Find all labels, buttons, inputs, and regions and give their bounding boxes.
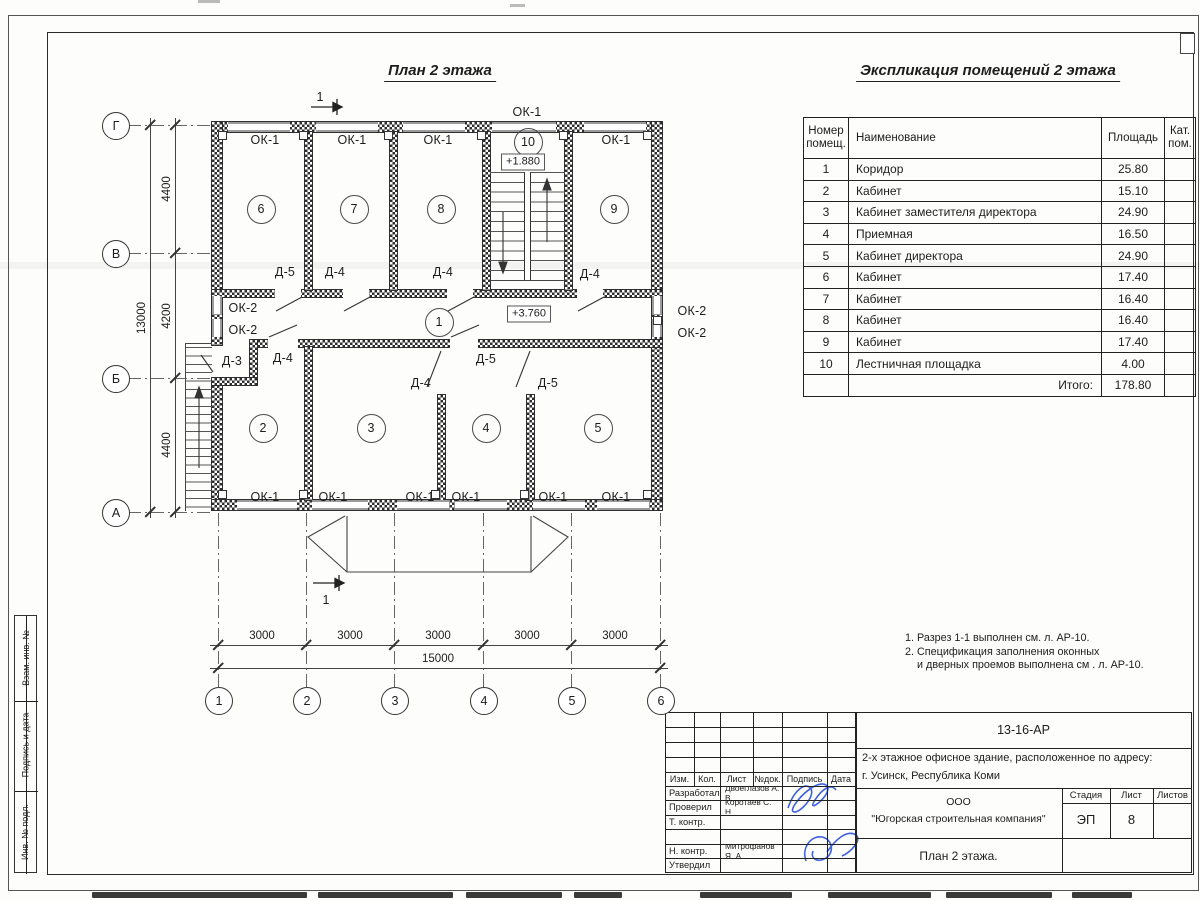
tb-role: Утвердил [665,858,720,872]
window [584,122,646,132]
room-circle-9: 9 [600,195,629,224]
room-number: 4 [804,223,849,245]
axis-line [660,513,661,688]
room-circle-7: 7 [340,195,369,224]
opening-label: ОК-1 [319,490,348,504]
grid-bubble-А: А [102,499,130,527]
grid-bubble-1: 1 [205,687,233,715]
axis-line [306,513,307,688]
window [212,296,222,314]
dim-label: 3000 [337,630,363,642]
opening-label: Д-3 [222,354,242,368]
note-line: 2. Спецификация заполнения оконных [905,646,1144,660]
tb-name [721,829,782,843]
axis-line [128,512,213,513]
list-label: Лист [1110,788,1153,803]
opening-label: Д-4 [325,265,345,279]
door-gap [450,338,478,349]
door-gap [268,338,298,349]
pier [384,131,393,140]
room-number: 9 [804,331,849,353]
opening-label: ОК-1 [452,490,481,504]
room-category [1165,331,1196,353]
section-number: 1 [323,593,330,607]
tb-role: Разработал [665,786,720,800]
tb-col-list: Лист [720,772,753,786]
room-circle-1: 1 [425,308,454,337]
col-header-cat: Кат. пом. [1165,118,1196,159]
opening-label: Д-5 [538,376,558,390]
room-category [1165,266,1196,288]
scan-mark [510,4,525,7]
elevation-mark: +3.760 [507,306,551,323]
opening-label: ОК-2 [229,323,258,337]
room-number: 8 [804,310,849,332]
room-name: Коридор [849,159,1102,181]
explication-row: 4Приемная16.50 [804,223,1196,245]
opening-label: ОК-1 [251,490,280,504]
room-number: 2 [804,180,849,202]
pier [653,316,662,325]
scan-mark [92,892,307,898]
room-name: Кабинет [849,266,1102,288]
explication-row: 6Кабинет17.40 [804,266,1196,288]
scan-mark [700,892,792,898]
opening-label: ОК-1 [539,490,568,504]
list-value: 8 [1110,803,1153,836]
scan-mark [318,892,453,898]
dim-line [210,645,668,646]
partition [305,347,312,500]
room-number: 6 [804,266,849,288]
dim-label: 3000 [602,630,628,642]
elevation-mark: +1.880 [501,154,545,171]
pier [218,490,227,499]
pier [643,490,652,499]
explication-row: 1Коридор25.80 [804,159,1196,181]
explication-row: 7Кабинет16.40 [804,288,1196,310]
door-gap [447,288,473,299]
grid-bubble-2: 2 [293,687,321,715]
window [652,296,662,314]
col-header-number: Номер помещ. [804,118,849,159]
room-name: Кабинет [849,331,1102,353]
room-name: Кабинет [849,288,1102,310]
scan-mark [946,892,1052,898]
room-name: Кабинет заместителя директора [849,202,1102,224]
pier [520,490,529,499]
dim-label: 13000 [136,302,148,334]
grid-bubble-6: 6 [647,687,675,715]
tb-col-sign: Подпись [782,772,827,786]
explication-row: 2Кабинет15.10 [804,180,1196,202]
room-circle-2: 2 [249,414,278,443]
company-line1: ООО [855,793,1062,811]
room-area: 16.40 [1102,310,1165,332]
opening-label: ОК-2 [229,301,258,315]
stair-wall [483,132,490,290]
pier [477,131,486,140]
dim-label: 3000 [249,630,275,642]
room-area: 17.40 [1102,331,1165,353]
opening-label: ОК-1 [602,490,631,504]
tb-name: Митрофанов Я. А. [721,844,782,858]
explication-row: 8Кабинет16.40 [804,310,1196,332]
partition [438,395,445,500]
dim-line [210,668,668,669]
room-number: 5 [804,245,849,267]
stage-label: Стадия [1062,788,1110,803]
axis-line [571,513,572,688]
dim-label: 4400 [161,176,173,202]
opening-label: Д-4 [580,267,600,281]
object-line1: 2-х этажное офисное здание, расположенно… [855,748,1192,768]
scan-mark [828,892,931,898]
partition [390,132,397,290]
opening-label: Д-4 [411,376,431,390]
room-name: Кабинет [849,310,1102,332]
opening-label: ОК-1 [424,133,453,147]
room-name: Кабинет [849,180,1102,202]
room-area: 15.10 [1102,180,1165,202]
opening-label: Д-4 [273,351,293,365]
explication-row: 9Кабинет17.40 [804,331,1196,353]
room-area: 4.00 [1102,353,1165,375]
axis-line [483,513,484,688]
tb-col-kol: Кол. [694,772,720,786]
section-number: 1 [317,90,324,104]
window [212,319,222,337]
pier [299,490,308,499]
axis-line [128,125,213,126]
opening-label: ОК-1 [513,105,542,119]
wall-stub [212,378,257,385]
sheet-caption: План 2 этажа. [855,838,1062,873]
window [228,122,290,132]
pier [559,131,568,140]
stage-value: ЭП [1062,803,1110,836]
total-area: 178.80 [1102,374,1165,396]
ext-stair-edge [185,343,212,344]
partition [305,132,312,290]
room-area: 17.40 [1102,266,1165,288]
axis-line [394,513,395,688]
door-gap [343,288,369,299]
explication-row: 10Лестничная площадка4.00 [804,353,1196,375]
note-line: 1. Разрез 1-1 выполнен см. л. АР-10. [905,632,1144,646]
room-circle-10: 10 [514,128,543,157]
listov-value [1153,803,1192,836]
tb-role [665,829,720,843]
opening-label: Д-5 [476,352,496,366]
opening-label: Д-4 [433,265,453,279]
room-circle-6: 6 [247,195,276,224]
grid-bubble-3: 3 [381,687,409,715]
total-label: Итого: [849,374,1102,396]
pier [218,131,227,140]
opening-label: Д-5 [275,265,295,279]
room-name: Лестничная площадка [849,353,1102,375]
grid-bubble-Б: Б [102,365,130,393]
doc-number: 13-16-АР [855,712,1192,748]
dim-label: 3000 [514,630,540,642]
explication-row: 3Кабинет заместителя директора24.90 [804,202,1196,224]
explication-table: Номер помещ. Наименование Площадь Кат. п… [803,117,1196,397]
grid-bubble-4: 4 [470,687,498,715]
opening-label: ОК-1 [602,133,631,147]
dim-label: 4200 [161,303,173,329]
tb-name [721,858,782,872]
window [316,122,378,132]
room-category [1165,288,1196,310]
room-area: 16.50 [1102,223,1165,245]
pier [299,131,308,140]
room-category [1165,245,1196,267]
scan-mark [1072,892,1132,898]
ext-stair-treads [186,347,212,511]
scan-mark [198,0,220,3]
axis-line [218,513,219,688]
col-header-name: Наименование [849,118,1102,159]
col-header-area: Площадь [1102,118,1165,159]
opening-label: ОК-1 [338,133,367,147]
room-area: 16.40 [1102,288,1165,310]
total-cat [1165,374,1196,396]
company-line2: "Югорская строительная компания" [855,810,1062,828]
notes: 1. Разрез 1-1 выполнен см. л. АР-10.2. С… [905,632,1144,673]
explication-total-row: Итого:178.80 [804,374,1196,396]
tb-name: Двоеглазов А. В. [721,786,782,800]
room-number: 7 [804,288,849,310]
tb-col-date: Дата [827,772,855,786]
grid-bubble-5: 5 [558,687,586,715]
room-area: 24.90 [1102,202,1165,224]
dim-label: 4400 [161,432,173,458]
tb-col-izm: Изм. [665,772,694,786]
room-number: 10 [804,353,849,375]
room-circle-3: 3 [357,414,386,443]
room-category [1165,223,1196,245]
note-line: и дверных проемов выполнена см . л. АР-1… [905,659,1144,673]
side-stamp-cell: Взам. инв. № [14,615,37,700]
explication-row: 5Кабинет директора24.90 [804,245,1196,267]
door-gap [577,288,603,299]
tb-col-doc: №док. [753,772,782,786]
tb-role: Проверил [665,800,720,814]
scan-mark [466,892,562,898]
room-name: Приемная [849,223,1102,245]
dim-label: 3000 [425,630,451,642]
room-number: 3 [804,202,849,224]
total-empty [804,374,849,396]
room-category [1165,159,1196,181]
grid-bubble-В: В [102,240,130,268]
window [403,122,465,132]
room-circle-4: 4 [472,414,501,443]
scan-mark [574,892,622,898]
drawing-sheet: План 2 этажа Экспликация помещений 2 эта… [0,0,1200,900]
pier [643,131,652,140]
object-line2: г. Усинск, Республика Коми [855,766,1192,786]
side-stamp-cell: Инв. № подл. [14,790,37,873]
frame-corner-box [1180,33,1195,54]
dim-line [150,118,151,518]
room-circle-8: 8 [427,195,456,224]
room-category [1165,310,1196,332]
room-area: 25.80 [1102,159,1165,181]
opening-label: ОК-1 [251,133,280,147]
opening-label: ОК-1 [406,490,435,504]
stair-wall [565,132,572,290]
axis-line [128,378,213,379]
grid-bubble-Г: Г [102,112,130,140]
opening-label: ОК-2 [678,304,707,318]
dim-label: 15000 [422,653,454,665]
listov-label: Листов [1153,788,1192,803]
explication-title: Экспликация помещений 2 этажа [856,62,1120,82]
room-circle-5: 5 [584,414,613,443]
tb-role: Т. контр. [665,815,720,829]
partition [527,395,534,500]
stair-divider [524,172,531,280]
room-number: 1 [804,159,849,181]
dim-line [175,118,176,518]
tb-name: Коротаев С. Н. [721,800,782,814]
axis-line [128,253,213,254]
opening-label: ОК-2 [678,326,707,340]
room-area: 24.90 [1102,245,1165,267]
room-name: Кабинет директора [849,245,1102,267]
room-category [1165,202,1196,224]
plan-title: План 2 этажа [384,62,496,82]
tb-name [721,815,782,829]
door-gap [275,288,301,299]
tb-role: Н. контр. [665,844,720,858]
side-stamp-cell: Подпись и дата [14,700,37,790]
room-category [1165,353,1196,375]
stair-edge [490,280,565,281]
room-category [1165,180,1196,202]
